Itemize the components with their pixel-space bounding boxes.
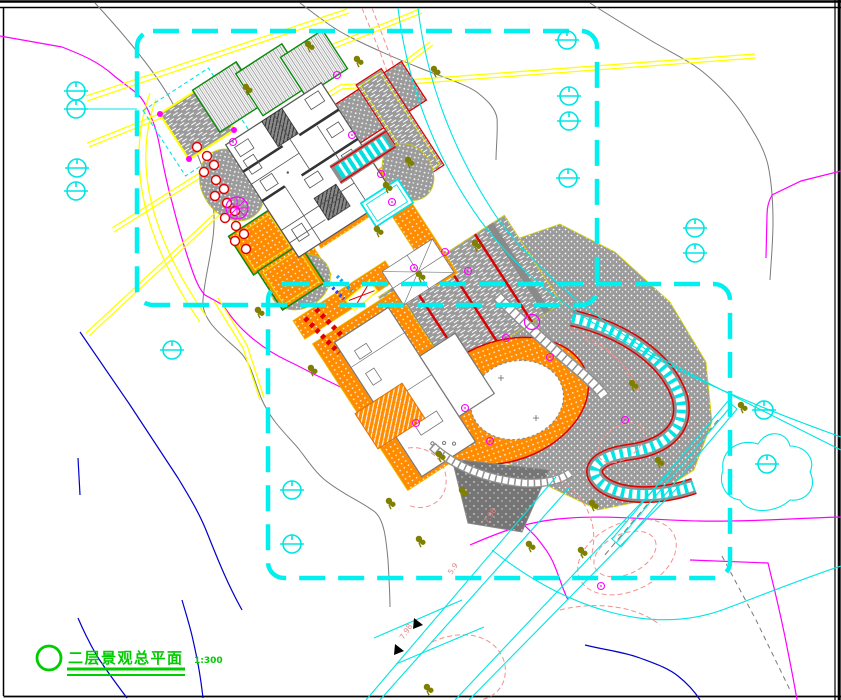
big-flower [226,197,248,219]
elevation-label: 5.9 [446,561,460,576]
plan-title: 二层景观总平面 [68,649,184,667]
elevation-label: 7.98 [398,622,415,641]
site-plan-canvas: 7.98 5.9 7.98 二层景观总平面 1:300 [0,0,841,700]
cad-viewport: 7.98 5.9 7.98 二层景观总平面 1:300 [0,0,841,700]
title-bullet-circle [37,646,61,670]
plan-scale: 1:300 [194,656,223,666]
pond-blob [722,434,813,511]
